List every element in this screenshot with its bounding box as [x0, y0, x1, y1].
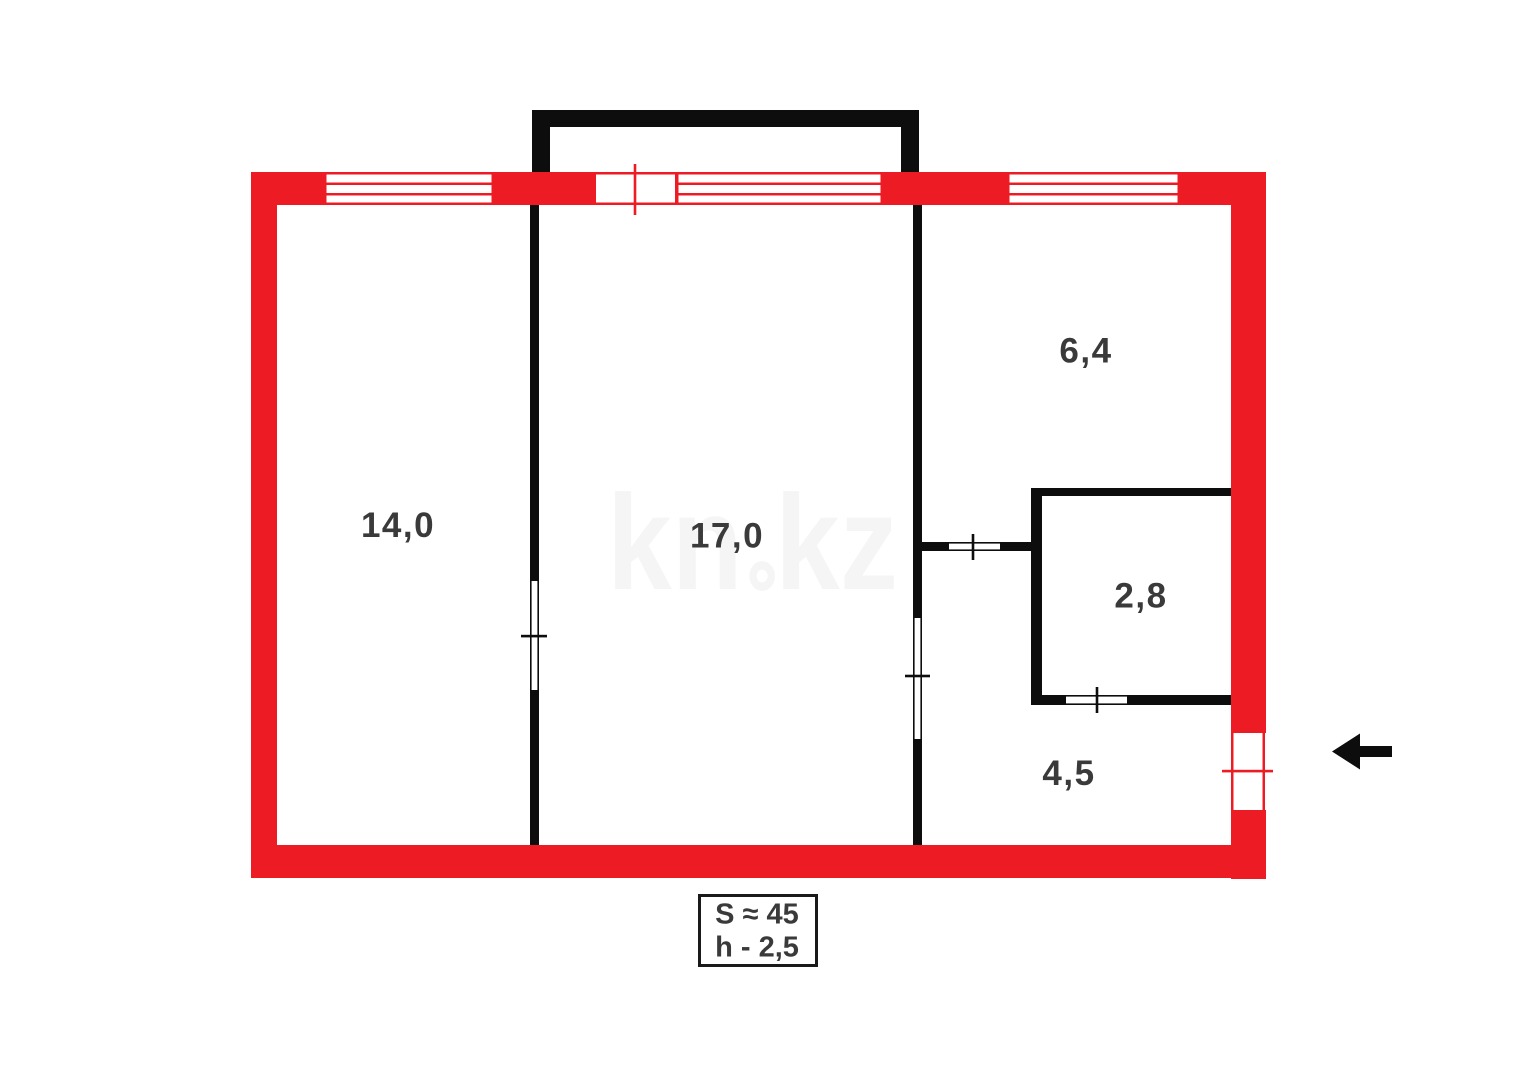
svg-text:2,8: 2,8: [1114, 577, 1167, 616]
svg-text:S ≈ 45: S ≈ 45: [715, 899, 799, 931]
svg-text:kz: kz: [775, 467, 898, 618]
svg-text:14,0: 14,0: [361, 506, 435, 545]
svg-text:4,5: 4,5: [1042, 754, 1095, 793]
svg-text:h - 2,5: h - 2,5: [715, 932, 799, 964]
svg-text:6,4: 6,4: [1059, 332, 1112, 371]
svg-text:17,0: 17,0: [690, 517, 764, 556]
